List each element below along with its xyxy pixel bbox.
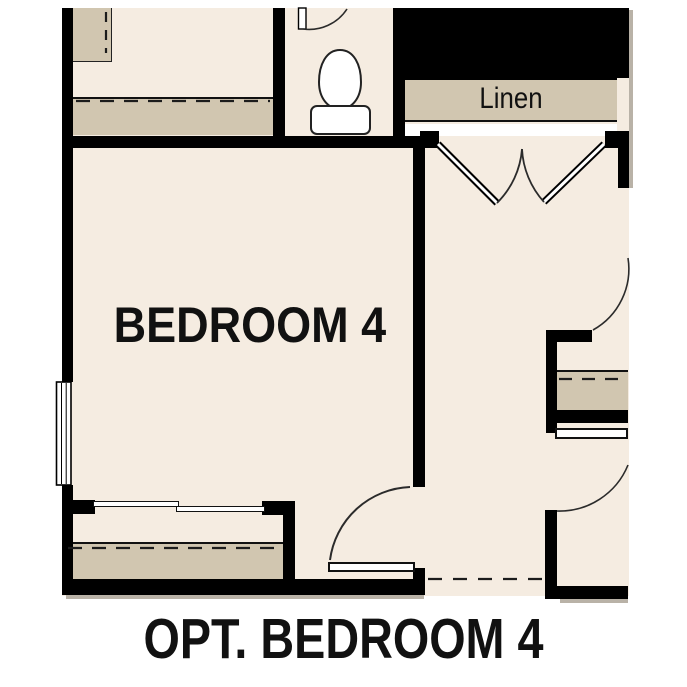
linen-closet-label: Linen [420, 82, 602, 116]
window [57, 382, 72, 485]
door-swing-upper-right [593, 258, 629, 330]
bedroom-4-label: BEDROOM 4 [114, 296, 377, 354]
bedroom-door-swing [330, 487, 410, 560]
plan-caption: OPT. BEDROOM 4 [62, 606, 625, 672]
door-swing-lower-right [557, 465, 628, 511]
floor-plan: Linen BEDROOM 4 OPT. BEDROOM 4 [0, 0, 687, 687]
linen-double-doors [438, 144, 604, 203]
toilet-fixture [311, 50, 370, 134]
bathroom-door [299, 8, 348, 29]
